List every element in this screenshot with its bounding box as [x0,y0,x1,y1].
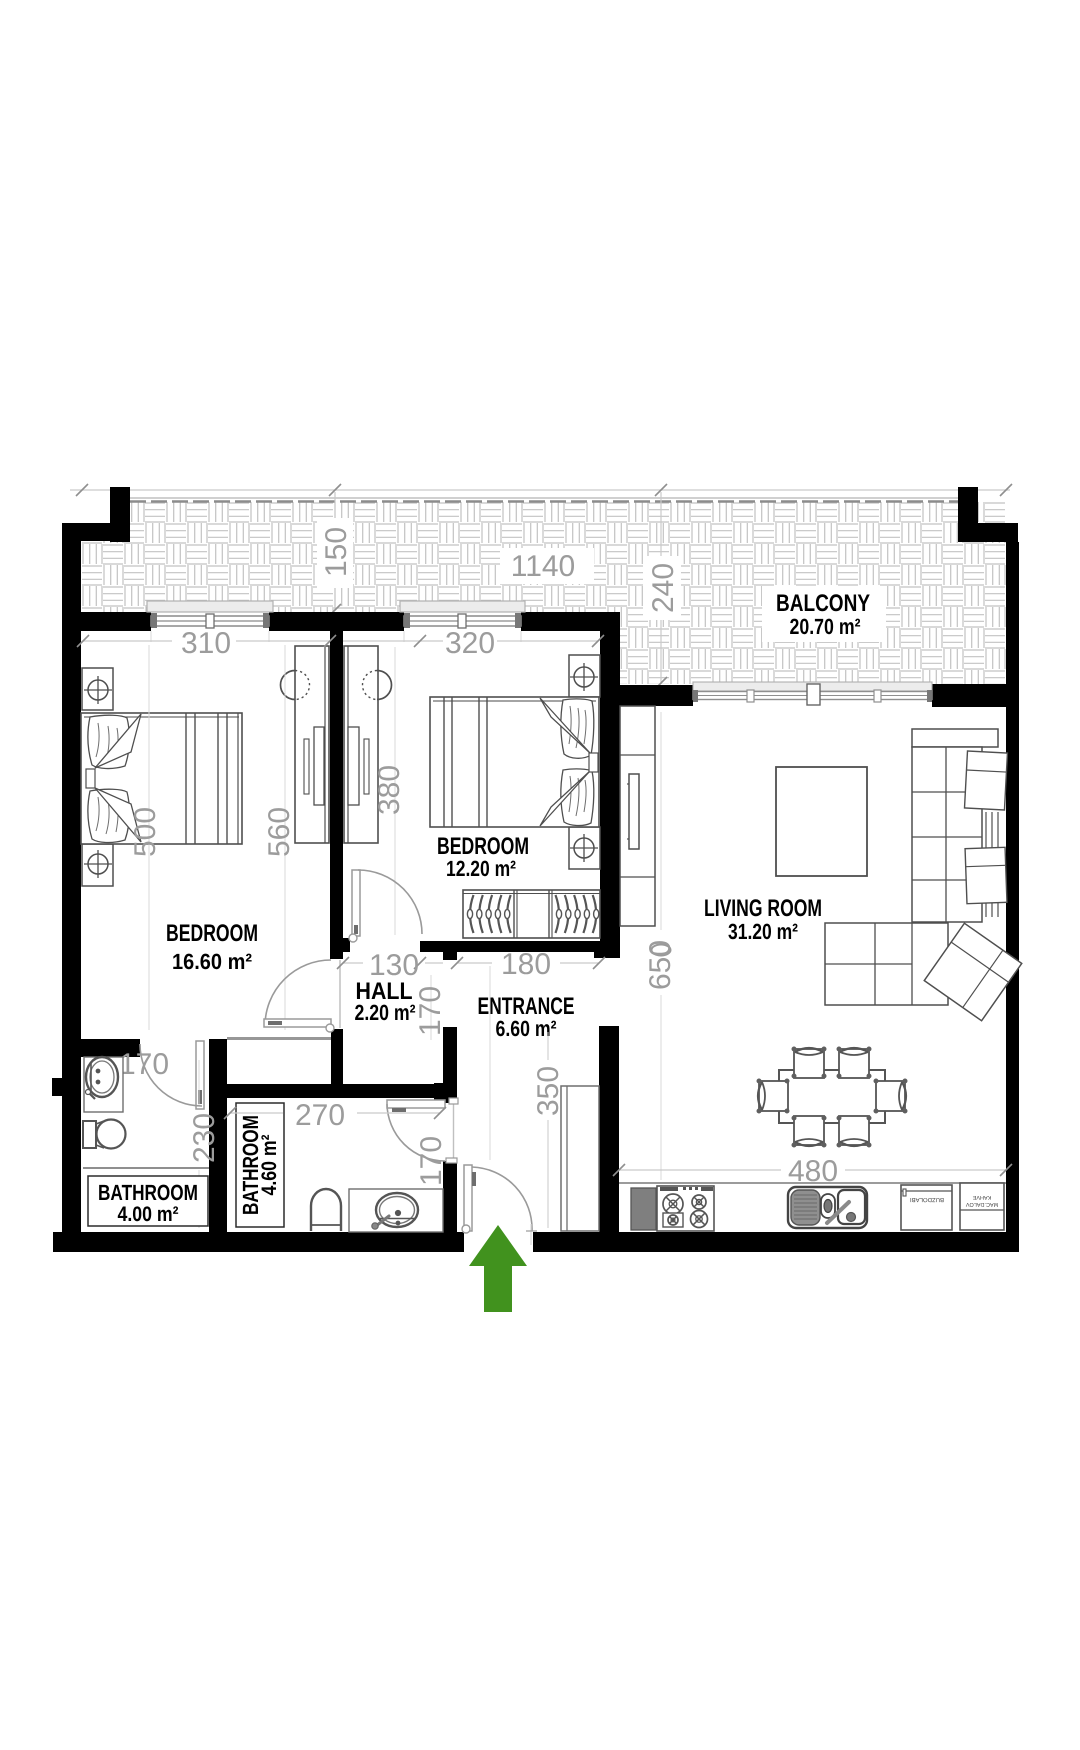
svg-text:130: 130 [369,949,419,982]
svg-text:500: 500 [129,807,162,857]
svg-text:BATHROOM: BATHROOM [98,1180,198,1205]
svg-text:270: 270 [295,1099,345,1132]
svg-text:350: 350 [532,1066,565,1116]
svg-text:4.00 m²: 4.00 m² [118,1203,179,1226]
svg-text:480: 480 [788,1155,838,1188]
svg-text:170: 170 [119,1048,169,1081]
svg-text:4.60 m²: 4.60 m² [258,1134,281,1195]
svg-text:20.70 m²: 20.70 m² [790,614,861,639]
svg-text:170: 170 [415,1136,448,1186]
svg-text:BALCONY: BALCONY [776,590,870,617]
svg-text:LIVING ROOM: LIVING ROOM [704,895,822,922]
svg-text:KAHVE: KAHVE [972,1194,991,1200]
svg-text:230: 230 [188,1113,221,1163]
svg-text:170: 170 [414,986,447,1036]
svg-text:31.20 m²: 31.20 m² [728,919,798,944]
svg-text:310: 310 [181,627,231,660]
svg-text:1140: 1140 [511,550,576,583]
svg-text:BUZDOLABI: BUZDOLABI [910,1196,944,1203]
svg-text:MAC.DALOV: MAC.DALOV [965,1201,998,1207]
svg-text:BEDROOM: BEDROOM [166,920,258,947]
svg-text:320: 320 [445,627,495,660]
svg-text:150: 150 [320,527,353,577]
svg-text:6.60 m²: 6.60 m² [496,1016,557,1041]
svg-text:240: 240 [647,563,680,613]
svg-text:650: 650 [644,940,677,990]
svg-text:16.60 m²: 16.60 m² [172,949,252,974]
svg-text:180: 180 [501,948,551,981]
svg-text:12.20 m²: 12.20 m² [446,856,516,881]
svg-text:2.20 m²: 2.20 m² [355,1000,416,1025]
svg-text:380: 380 [373,765,406,815]
svg-text:560: 560 [263,807,296,857]
